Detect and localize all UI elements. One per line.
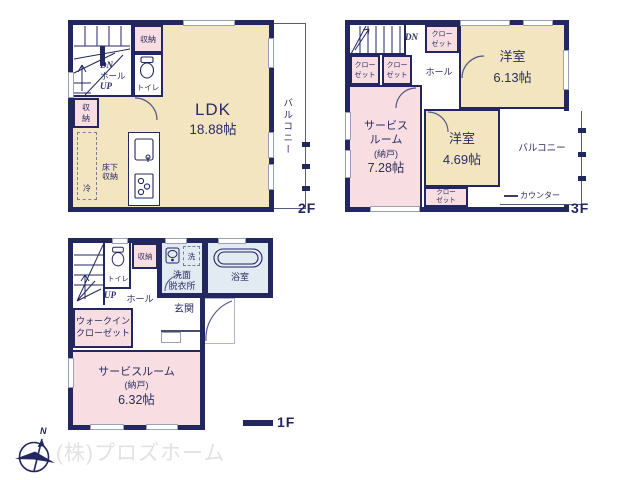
wic-label: ウォークインクローゼット xyxy=(76,316,130,339)
window xyxy=(218,238,246,244)
room-size: 6.13帖 xyxy=(493,67,531,86)
bathtub-icon xyxy=(213,248,263,268)
door-arc xyxy=(461,55,485,79)
balcony-tick xyxy=(302,186,310,191)
room-service-1f-label: サービスルーム (納戸) 6.32帖 xyxy=(73,366,200,407)
closet-label: 収納 xyxy=(138,251,153,262)
up-label-1f: UP xyxy=(104,290,116,300)
floorplan-page: バルコニー DN ホール UP 収納 xyxy=(0,0,640,480)
floor-label-3f: 3F xyxy=(571,200,589,216)
bathroom-label: 浴室 xyxy=(218,272,262,283)
window xyxy=(460,20,510,26)
toilet-label-1f: トイレ xyxy=(105,276,131,284)
floor-plan-3f: DN クローゼット 洋室 6.13帖 クローゼット クローゼット ホール サービ… xyxy=(345,20,593,216)
balcony-tick xyxy=(302,164,310,169)
balcony-2f-label: バルコニー xyxy=(281,98,292,156)
service-name: サービスルーム xyxy=(361,120,411,148)
door-arc xyxy=(395,87,417,109)
entrance-label: 玄関 xyxy=(166,304,202,316)
dn-label: DN xyxy=(100,60,113,70)
window xyxy=(146,424,178,430)
entrance-step xyxy=(161,332,181,343)
compass-icon xyxy=(12,432,56,476)
balcony-3f-label: バルコニー xyxy=(503,143,581,154)
closet-label: クローゼット xyxy=(386,60,409,80)
window xyxy=(68,72,74,98)
washbasin-icon xyxy=(165,247,180,264)
underfloor-storage-label: 床下収納 xyxy=(99,163,121,182)
hall-label-3f: ホール xyxy=(417,67,461,78)
fridge-label: 冷 xyxy=(77,184,97,193)
door-arc xyxy=(205,300,233,342)
dn-label-3f: DN xyxy=(405,32,418,42)
window xyxy=(345,112,351,140)
floor-plan-1f: 洗 洗面 脱衣所 浴室 xyxy=(68,238,283,434)
closet-3f-left1: クローゼット xyxy=(350,55,380,85)
company-watermark: (株)プロズホーム xyxy=(56,437,225,467)
room-ldk-label: LDK 18.88帖 xyxy=(163,100,263,138)
service-name: サービスルーム xyxy=(73,366,200,379)
service-size: 7.28帖 xyxy=(350,161,422,176)
window xyxy=(563,50,569,90)
counter-label: カウンター xyxy=(520,191,564,200)
window xyxy=(68,358,74,388)
hall-label-1f: ホール xyxy=(122,294,158,305)
closet-label: 収納 xyxy=(81,102,91,124)
service-annex: (納戸) xyxy=(73,380,200,391)
closet-3f-left2: クローゼット xyxy=(382,55,412,85)
balcony-tick xyxy=(302,142,310,147)
window xyxy=(165,238,187,244)
window xyxy=(523,20,553,26)
window xyxy=(345,150,351,178)
room-name: 洋室 xyxy=(449,128,475,147)
window xyxy=(268,164,274,190)
service-annex: (納戸) xyxy=(350,149,422,160)
floor-label-bar xyxy=(243,420,273,426)
ldk-name: LDK xyxy=(163,100,263,120)
closet-3f-top: クローゼット xyxy=(425,25,459,53)
balcony-tick xyxy=(578,176,586,181)
floor-plan-2f: バルコニー DN ホール UP 収納 xyxy=(68,20,320,216)
toilet-icon xyxy=(110,246,126,268)
door-arc xyxy=(164,274,182,292)
closet-label: クローゼット xyxy=(436,189,457,205)
window xyxy=(112,238,128,244)
window xyxy=(268,132,274,158)
closet-label: クローゼット xyxy=(431,29,454,49)
washer-space: 洗 xyxy=(183,246,200,266)
door-arc xyxy=(134,97,158,121)
walk-in-closet: ウォークインクローゼット xyxy=(73,308,133,348)
floor-label-1f: 1F xyxy=(277,414,295,430)
closet-3f-bottom: クローゼット xyxy=(424,187,468,207)
up-label: UP xyxy=(100,81,112,91)
door-arc xyxy=(427,111,449,133)
window xyxy=(268,38,274,68)
stairs-icon xyxy=(73,243,105,305)
toilet-icon xyxy=(138,56,156,80)
washer-label: 洗 xyxy=(188,251,196,262)
stairs-icon xyxy=(350,25,406,55)
compass-north-label: N xyxy=(40,426,47,436)
window xyxy=(90,424,124,430)
closet-1f: 収納 xyxy=(132,243,158,269)
service-size: 6.32帖 xyxy=(73,393,200,408)
balcony-tick xyxy=(578,128,586,133)
stove-icon xyxy=(133,172,155,200)
closet-2f-left: 収納 xyxy=(73,98,99,128)
closet-2f-top: 収納 xyxy=(133,25,163,53)
window xyxy=(183,20,235,26)
hall-label: ホール xyxy=(100,71,126,81)
toilet-label-2f: トイレ xyxy=(134,84,162,93)
closet-label: クローゼット xyxy=(354,60,377,80)
room-service-3f-label: サービスルーム (納戸) 7.28帖 xyxy=(350,120,422,176)
room-size: 4.69帖 xyxy=(443,149,481,168)
room-name: 洋室 xyxy=(499,46,525,65)
counter-line xyxy=(504,195,518,197)
floor-label-2f: 2F xyxy=(298,200,316,216)
window xyxy=(370,206,420,212)
kitchen-sink-icon xyxy=(133,137,155,165)
ldk-size: 18.88帖 xyxy=(163,122,263,138)
closet-label: 収納 xyxy=(140,34,156,45)
balcony-tick xyxy=(578,152,586,157)
